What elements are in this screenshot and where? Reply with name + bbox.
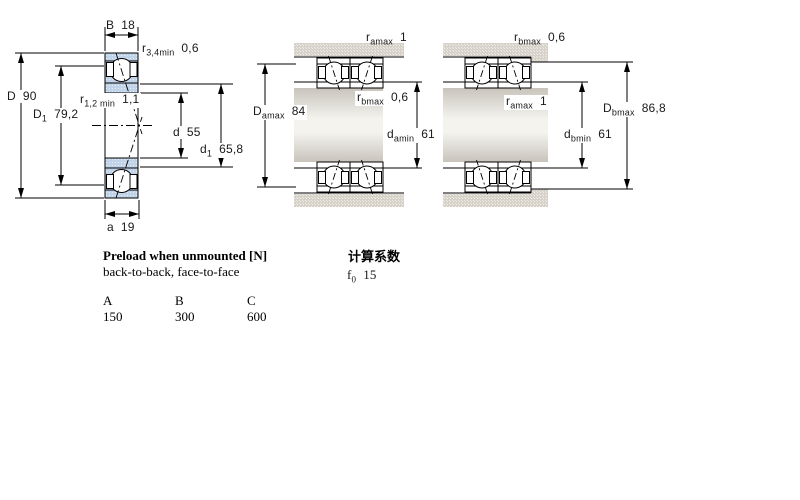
dim-label-d1: d165,8 [198,143,245,158]
dim-label-ramax-middle: ramax1 [366,31,407,46]
right-diagram [443,43,633,207]
preload-table-header: ABC [103,293,319,309]
preload-title: Preload when unmounted [N] [103,248,267,263]
preload-table-values: 150300600 [103,309,319,325]
dim-label-B: B18 [106,19,135,32]
bearing-technical-drawing: B18 r3,4min0,6 D90 D179,2 r1,2 min1,1 d5… [0,0,800,500]
middle-diagram [257,43,422,207]
dim-label-ramax-right: ramax1 [504,95,549,110]
dim-label-d: d55 [171,126,203,139]
preload-value-c: 600 [247,309,319,325]
dim-label-rbmax-right: rbmax0,6 [514,31,565,46]
preload-value-b: 300 [175,309,247,325]
dim-label-r12min: r1,2 min1,1 [78,93,141,108]
dim-label-D: D90 [5,90,39,103]
dim-label-D1: D179,2 [31,108,80,123]
dim-label-Damax: Damax84 [251,105,307,120]
preload-col-b: B [175,293,247,309]
preload-col-c: C [247,293,319,309]
dim-label-r34min: r3,4min0,6 [142,42,199,57]
dim-label-Dbmax: Dbmax86,8 [601,102,668,117]
preload-col-a: A [103,293,175,309]
dim-label-a: a19 [107,221,135,234]
calculation-title: 计算系数 [348,249,400,264]
calculation-f0: f015 [347,268,377,285]
preload-value-a: 150 [103,309,175,325]
dim-label-dbmin: dbmin61 [562,128,614,143]
preload-subtitle: back-to-back, face-to-face [103,264,239,279]
dim-label-rbmax-middle: rbmax0,6 [355,91,410,106]
dim-label-damin: damin61 [385,128,437,143]
